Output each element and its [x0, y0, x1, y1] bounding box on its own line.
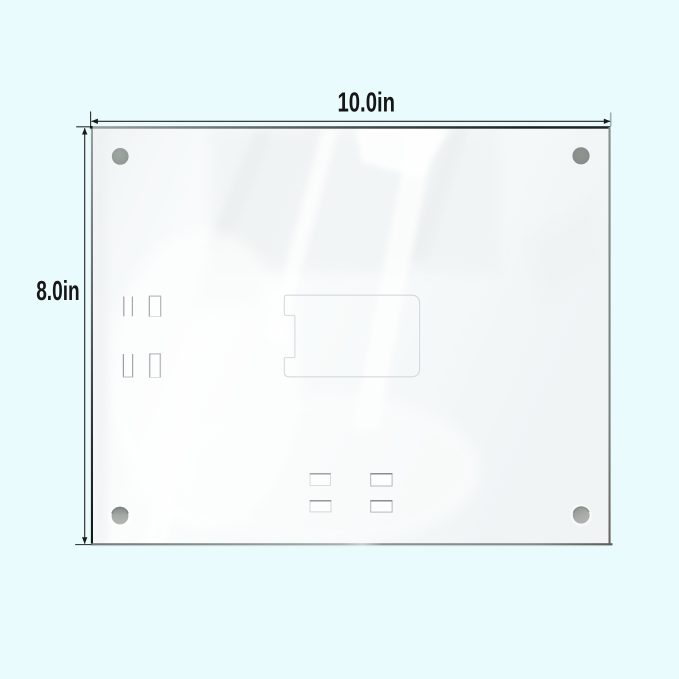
- svg-text:8.0in: 8.0in: [36, 275, 79, 306]
- svg-text:10.0in: 10.0in: [338, 87, 396, 118]
